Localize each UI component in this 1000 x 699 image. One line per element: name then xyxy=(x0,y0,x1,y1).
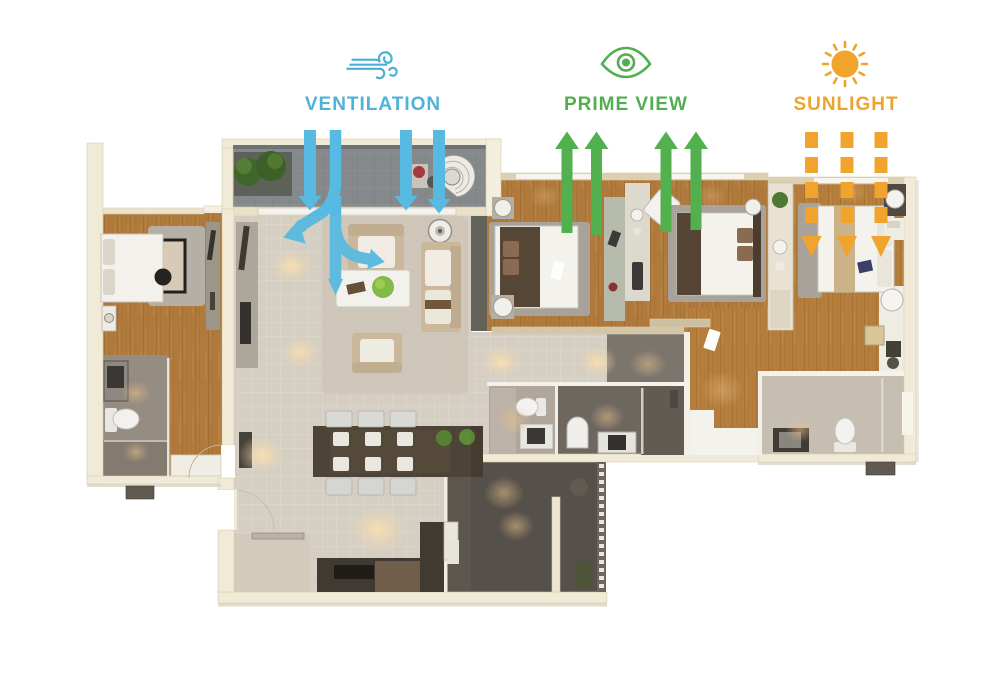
svg-text:SUNLIGHT: SUNLIGHT xyxy=(793,94,898,115)
svg-text:VENTILATION: VENTILATION xyxy=(305,94,441,115)
svg-text:PRIME VIEW: PRIME VIEW xyxy=(564,94,688,115)
